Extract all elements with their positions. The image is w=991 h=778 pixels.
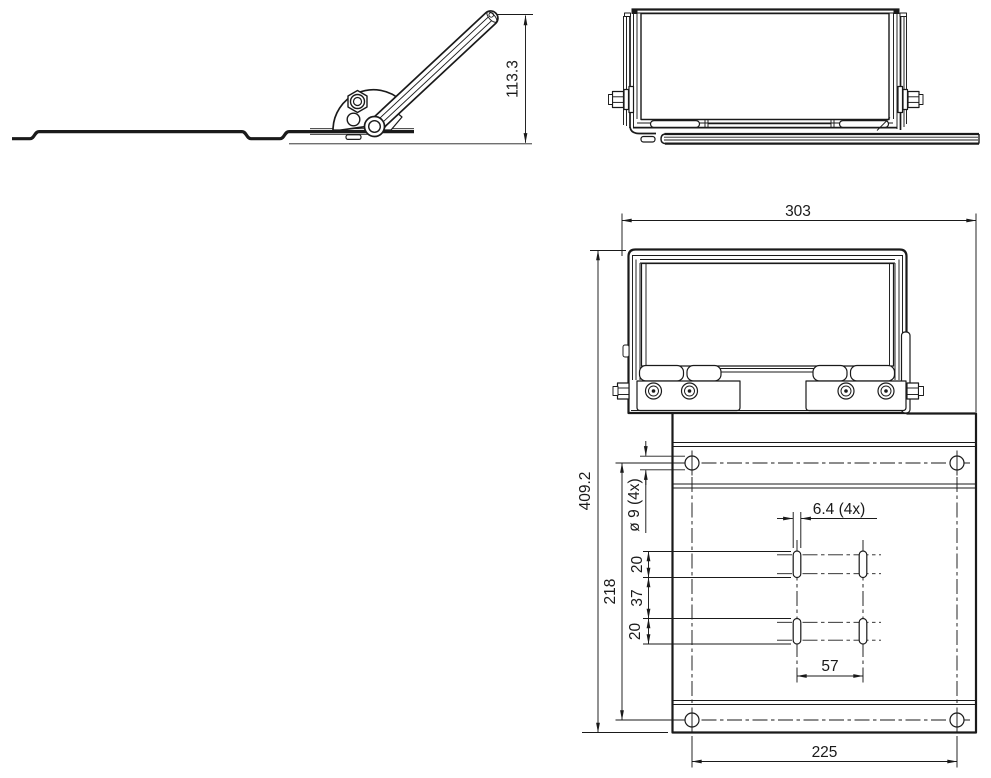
rail-top-cap: [894, 10, 899, 14]
slot-lower-left: [793, 619, 801, 645]
nut-hole-outer: [351, 95, 365, 109]
overall-width-dim-label: 303: [785, 203, 811, 220]
bolt-head: [908, 92, 919, 108]
rail-top-notch: [900, 13, 907, 17]
washer: [624, 90, 629, 110]
slot-upper-right: [859, 551, 867, 578]
slot-pitch-dim-label: 57: [821, 658, 838, 675]
arm-height-dim-label: 113.3: [505, 60, 522, 98]
slot-width-note-label: 6.4 (4x): [813, 501, 866, 518]
bolt-tip: [919, 95, 923, 105]
hole-diameter-note-label: ø 9 (4x): [626, 478, 643, 531]
hinge-base-tab: [346, 135, 361, 140]
bolt-head: [613, 92, 624, 108]
washer: [898, 87, 903, 113]
rail-top-notch: [625, 13, 631, 17]
washer: [903, 90, 908, 110]
slot-upper-left: [793, 551, 801, 578]
left-foot-tab: [641, 137, 655, 143]
technical-drawing-page: 113.3: [0, 0, 991, 778]
rail-top-cap: [632, 10, 637, 14]
bolt-tip: [609, 95, 613, 105]
overall-depth-dim-label: 409.2: [577, 472, 594, 511]
upper-slot-length-dim-label: 20: [629, 556, 646, 574]
knuckle: [813, 366, 847, 382]
left-rail-nub: [623, 345, 629, 357]
knuckle: [687, 366, 721, 382]
slot-gap-dim-label: 37: [629, 589, 646, 606]
knuckle: [851, 366, 895, 382]
hinge-slot: [651, 121, 700, 128]
knuckle: [640, 366, 684, 382]
disc-hole: [347, 113, 360, 126]
pivot-inner-circle: [369, 121, 381, 133]
hole-row-spacing-dim-label: 218: [602, 579, 619, 605]
lower-slot-length-dim-label: 20: [627, 623, 644, 641]
three-view-drawing: 113.3: [0, 0, 991, 778]
slot-lower-right: [859, 619, 867, 645]
bottom-hole-pitch-dim-label: 225: [812, 744, 838, 761]
washer: [629, 87, 634, 113]
